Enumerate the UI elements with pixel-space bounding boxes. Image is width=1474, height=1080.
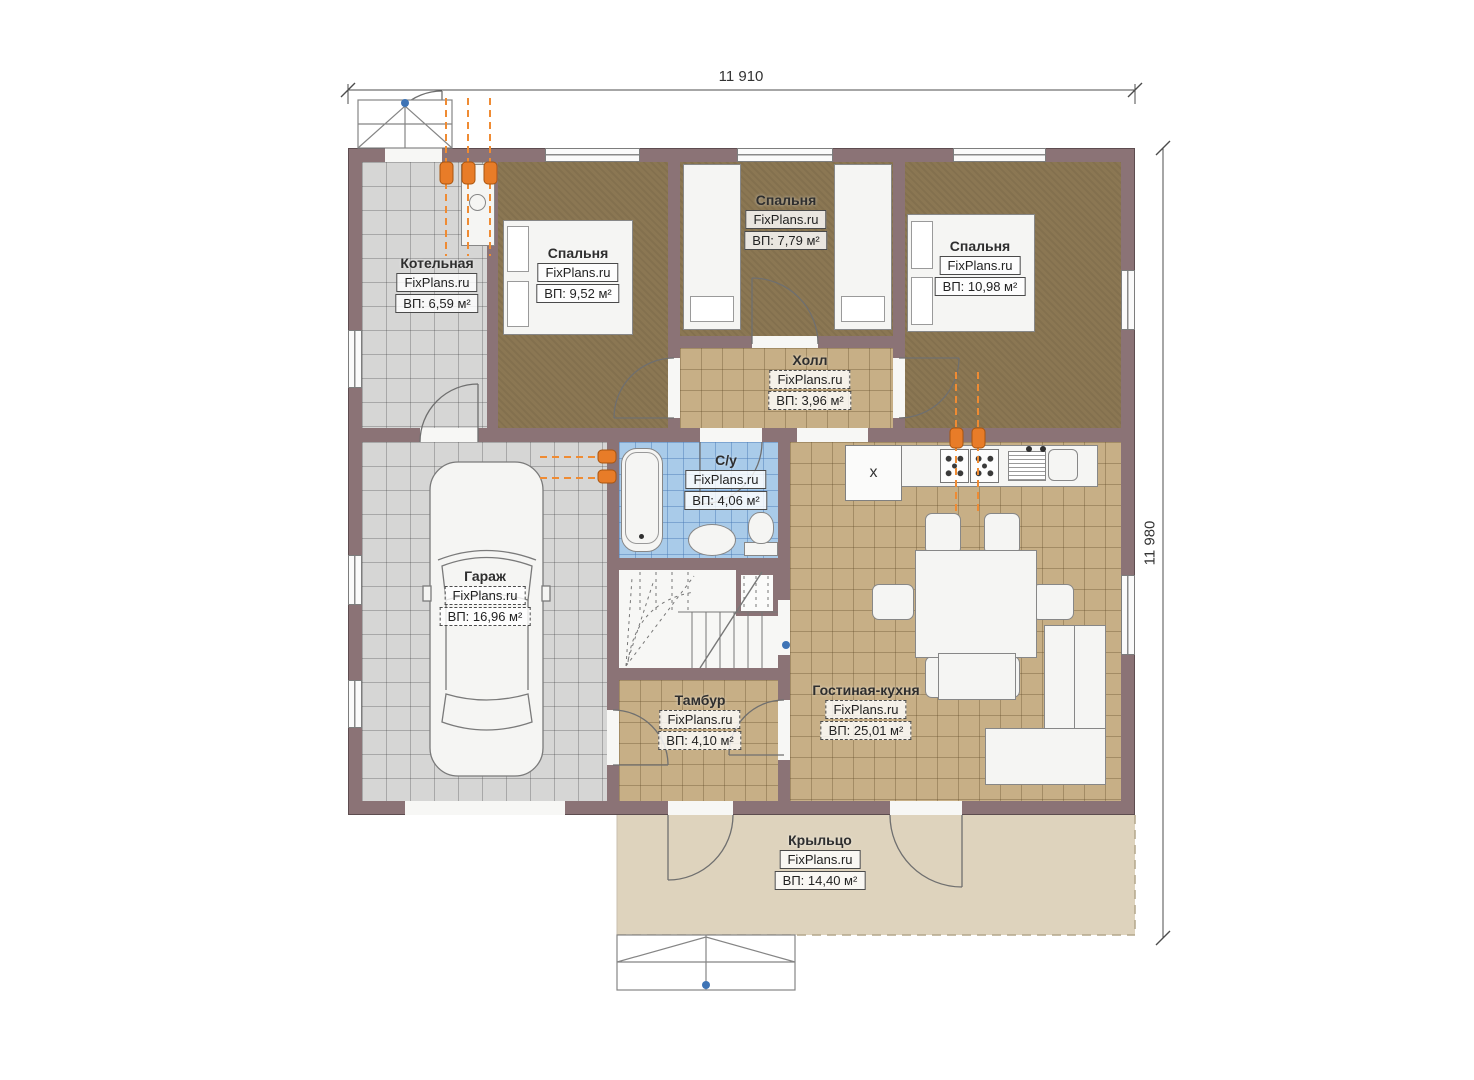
room-label-bedroom3: Спальня FixPlans.ru ВП: 10,98 м²	[935, 238, 1026, 296]
under-stairs-closet	[736, 570, 778, 616]
door-opening-bedroom2	[752, 336, 818, 348]
passage-hall-living	[797, 428, 868, 442]
fridge-symbol: x	[870, 464, 878, 482]
dining-chair	[1032, 584, 1074, 620]
pillow	[507, 226, 529, 272]
room-name: Котельная	[395, 255, 478, 271]
stove-burner-icon	[940, 449, 969, 483]
window-boiler-left	[348, 330, 362, 388]
coffee-table	[938, 653, 1016, 700]
dining-chair	[984, 513, 1020, 555]
bathtub-inner	[625, 452, 659, 544]
wall-exterior-right	[1121, 148, 1135, 815]
room-label-garage: Гараж FixPlans.ru ВП: 16,96 м²	[440, 568, 531, 626]
room-area: ВП: 25,01 м²	[821, 721, 912, 740]
sink-basin	[688, 524, 736, 556]
room-area: ВП: 7,79 м²	[744, 231, 827, 250]
pillow	[911, 277, 933, 325]
room-label-living-kitchen: Гостиная-кухня FixPlans.ru ВП: 25,01 м²	[812, 682, 919, 740]
boiler-dial-icon	[469, 194, 486, 211]
pillow	[507, 281, 529, 327]
room-name: Холл	[768, 352, 851, 368]
watermark: FixPlans.ru	[537, 263, 618, 282]
watermark: FixPlans.ru	[659, 710, 740, 729]
door-opening-boiler-garage	[420, 428, 478, 442]
room-area: ВП: 14,40 м²	[775, 871, 866, 890]
room-area: ВП: 4,06 м²	[684, 491, 767, 510]
room-label-bathroom: С/у FixPlans.ru ВП: 4,06 м²	[684, 452, 767, 510]
room-area: ВП: 4,10 м²	[658, 731, 741, 750]
bathtub-drain-icon	[639, 534, 644, 539]
wall-bath-stairs	[619, 558, 778, 570]
door-opening-boiler-entry	[385, 148, 442, 162]
dining-chair	[872, 584, 914, 620]
watermark: FixPlans.ru	[745, 210, 826, 229]
watermark: FixPlans.ru	[769, 370, 850, 389]
dimension-height-label: 11 980	[1142, 521, 1159, 566]
door-opening-bedroom1	[668, 358, 680, 418]
window-bedroom3-right	[1121, 270, 1135, 330]
room-label-bedroom2: Спальня FixPlans.ru ВП: 7,79 м²	[744, 192, 827, 250]
porch-floor	[617, 815, 1135, 935]
entry-steps-top	[358, 100, 452, 148]
door-opening-living-porch	[890, 801, 962, 815]
room-area: ВП: 3,96 м²	[768, 391, 851, 410]
floor-plan-canvas: x	[0, 0, 1474, 1080]
sofa-chaise	[985, 728, 1106, 785]
room-label-bedroom1: Спальня FixPlans.ru ВП: 9,52 м²	[536, 245, 619, 303]
fridge-icon: x	[845, 445, 902, 501]
kitchen-sink-basin	[1048, 449, 1078, 481]
room-label-vestibule: Тамбур FixPlans.ru ВП: 4,10 м²	[658, 692, 741, 750]
toilet-tank	[744, 542, 778, 556]
opening-stairs-living	[778, 600, 790, 655]
room-area: ВП: 9,52 м²	[536, 284, 619, 303]
watermark: FixPlans.ru	[779, 850, 860, 869]
pillow	[841, 296, 885, 322]
window-bedroom1	[545, 148, 640, 162]
room-label-porch: Крыльцо FixPlans.ru ВП: 14,40 м²	[775, 832, 866, 890]
room-name: С/у	[684, 452, 767, 468]
entry-steps-bottom	[617, 935, 795, 990]
toilet-bowl	[748, 512, 774, 544]
door-opening-bedroom3	[893, 358, 905, 418]
watermark: FixPlans.ru	[396, 273, 477, 292]
room-label-hall: Холл FixPlans.ru ВП: 3,96 м²	[768, 352, 851, 410]
room-name: Тамбур	[658, 692, 741, 708]
room-name: Гараж	[440, 568, 531, 584]
pillow	[690, 296, 734, 322]
window-garage-left-2	[348, 680, 362, 728]
room-name: Крыльцо	[775, 832, 866, 848]
door-opening-bathroom	[700, 428, 762, 442]
room-name: Гостиная-кухня	[812, 682, 919, 698]
watermark: FixPlans.ru	[939, 256, 1020, 275]
window-bedroom3-top	[953, 148, 1046, 162]
window-living-right	[1121, 575, 1135, 655]
dining-table	[915, 550, 1037, 658]
stove-burner-icon	[970, 449, 999, 483]
room-area: ВП: 16,96 м²	[440, 607, 531, 626]
room-area: ВП: 6,59 м²	[395, 294, 478, 313]
room-name: Спальня	[744, 192, 827, 208]
wall-stairs-vestibule	[619, 668, 778, 680]
room-label-boiler: Котельная FixPlans.ru ВП: 6,59 м²	[395, 255, 478, 313]
room-area: ВП: 10,98 м²	[935, 277, 1026, 296]
watermark: FixPlans.ru	[444, 586, 525, 605]
faucet-dot-icon	[1040, 446, 1046, 452]
window-bedroom2	[737, 148, 833, 162]
room-name: Спальня	[536, 245, 619, 261]
watermark: FixPlans.ru	[825, 700, 906, 719]
sink-drainboard-icon	[1008, 451, 1046, 481]
garage-gate-opening	[405, 801, 565, 815]
watermark: FixPlans.ru	[685, 470, 766, 489]
dining-chair	[925, 513, 961, 555]
door-opening-garage-vestibule	[607, 710, 619, 765]
pillow	[911, 221, 933, 269]
door-opening-vestibule-living	[778, 700, 790, 760]
room-name: Спальня	[935, 238, 1026, 254]
dimension-width-label: 11 910	[719, 68, 764, 85]
window-garage-left-1	[348, 555, 362, 605]
faucet-dot-icon	[1026, 446, 1032, 452]
door-opening-vestibule-porch	[668, 801, 733, 815]
